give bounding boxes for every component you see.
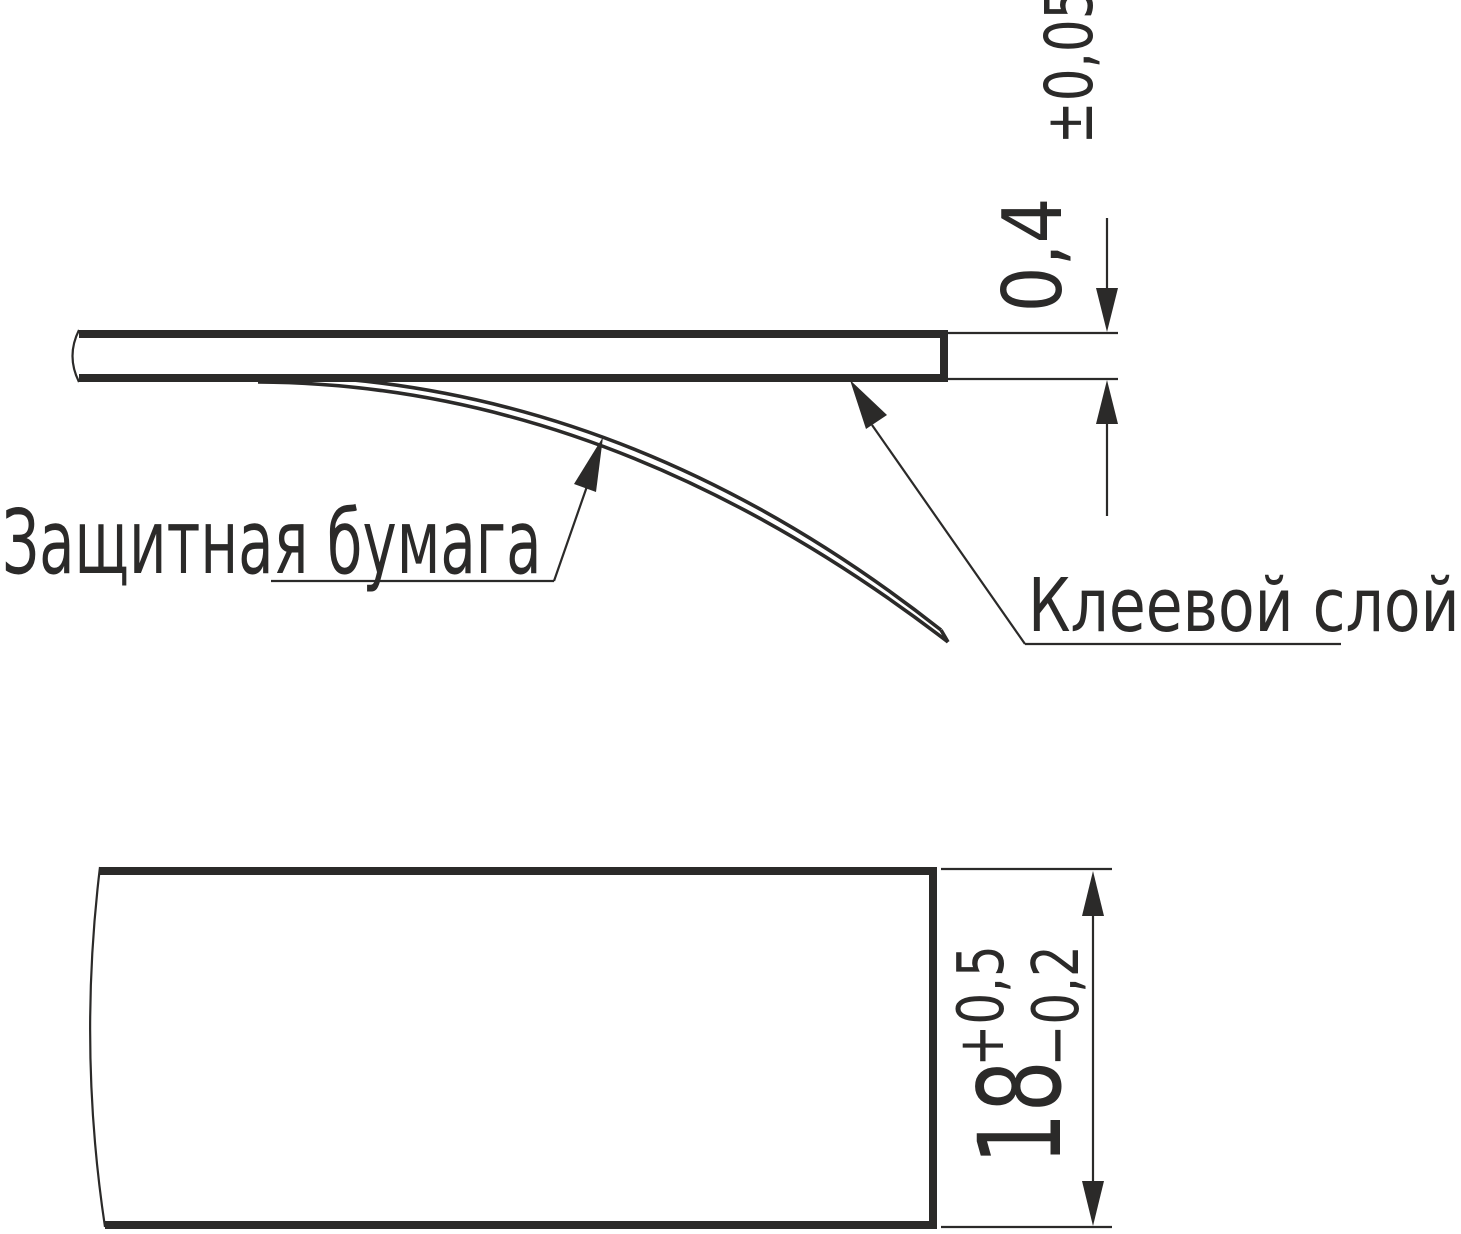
label-adhesive-layer: Клеевой слой bbox=[1028, 569, 1460, 643]
arrowhead-up-icon bbox=[1096, 380, 1118, 424]
dimension-width-tolerance-minus: −0,2 bbox=[1020, 950, 1095, 1067]
arrowhead-up-icon bbox=[1082, 871, 1104, 916]
arrowhead-down-icon bbox=[1082, 1181, 1104, 1226]
plan-outline bbox=[99, 871, 933, 1225]
callout-leader bbox=[872, 425, 1025, 644]
callout-arrowhead-icon bbox=[850, 380, 887, 429]
strip-outline bbox=[79, 334, 944, 378]
dimension-thickness-value: 0,4 bbox=[989, 189, 1079, 321]
strip-side-view bbox=[73, 330, 945, 382]
dimension-thickness-tolerance: ±0,05 bbox=[1039, 20, 1101, 145]
technical-drawing-canvas: Защитная бумага Клеевой слой 0,4 ±0,05 1… bbox=[0, 0, 1461, 1234]
label-protective-paper: Защитная бумага bbox=[2, 498, 542, 587]
dimension-width-tolerances: +0,5 −0,2 bbox=[945, 950, 1095, 1067]
arrowhead-down-icon bbox=[1096, 288, 1118, 332]
dimension-width-value: 18 bbox=[975, 1085, 1067, 1164]
callout-arrowhead-icon bbox=[574, 437, 603, 492]
strip-plan-view bbox=[90, 867, 933, 1227]
dimension-width-tolerance-plus: +0,5 bbox=[945, 950, 1020, 1067]
strip-break-edge bbox=[73, 330, 80, 382]
